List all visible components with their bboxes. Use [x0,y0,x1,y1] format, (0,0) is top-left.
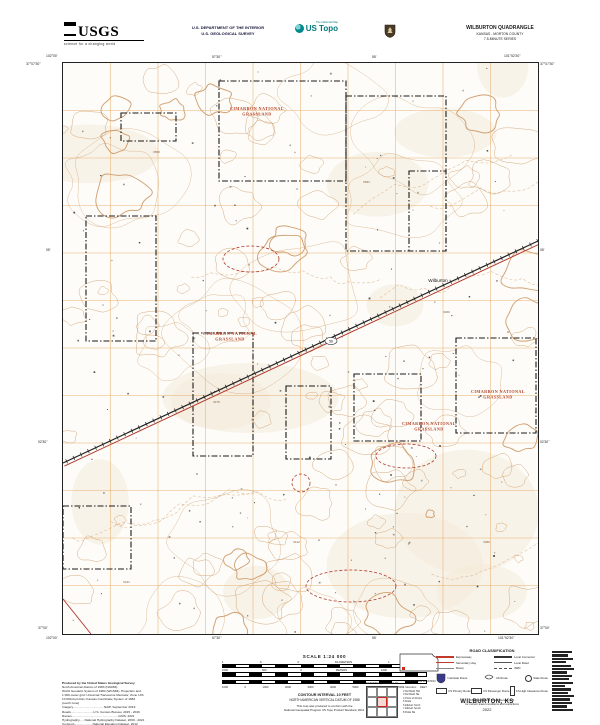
road-sample-ramp [436,668,454,669]
grassland-label-line1: CIMARRON NATIONAL [402,421,456,426]
grassland-label-line1: CIMARRON NATIONAL [471,389,525,394]
grassland-label-line2: GRASSLAND [483,395,512,400]
structure-dot [216,105,217,106]
structure-dot [280,390,282,392]
adjoining-cell [387,687,397,697]
grassland-label-line2: GRASSLAND [242,112,271,117]
structure-dot [139,242,140,243]
graticule-label: 37°07'30" [26,62,41,66]
structure-dot [450,487,451,488]
structure-dot [393,526,394,527]
ft-label: 3000 [308,686,314,689]
structure-dot [396,193,397,194]
us-route-number: 56 [329,339,333,343]
structure-dot [385,356,386,357]
structure-dot [136,438,137,439]
route-shield-item: State Route [525,673,548,684]
structure-dot [77,340,79,342]
structure-dot [487,150,489,152]
structure-dot [297,189,298,190]
structure-dot [451,315,452,316]
contour-line [157,591,200,631]
fs-route-marker-icon [471,688,482,694]
structure-dot [83,230,84,231]
structure-dot [439,581,440,582]
contour-line [220,150,236,163]
m-label: 0 [300,669,302,672]
structure-dot [369,298,371,300]
legend-road-item: Expressway [436,655,490,659]
adjoining-list: 1 Saunders2 Richfield SW3 Richfield SE4 … [403,686,422,718]
structure-dot [494,552,495,553]
contour-line [331,622,356,634]
structure-dot [127,393,128,394]
km-label: 1 [388,661,390,664]
structure-dot [294,631,296,633]
spot-elevation: 3389 [483,540,490,544]
adjoining-quad-name: 3 Richfield SE [403,693,422,697]
structure-dot [123,184,125,186]
structure-dot [140,504,141,505]
structure-dot [329,395,330,396]
structure-dot [486,68,487,69]
structure-dot [113,331,114,332]
ustopo-logo: The National Map US Topo [286,20,338,33]
structure-dot [107,409,108,410]
usgs-logo-text: USGS [78,24,119,40]
structure-dot [103,492,105,494]
contour-line [213,612,248,634]
structure-dot [206,310,207,311]
quadrangle-series: 7.5-MINUTE SERIES [415,37,585,42]
contour-line [429,353,450,369]
barcode-bar [552,665,571,667]
structure-dot [429,357,430,358]
terrain-patch [327,513,484,618]
contour-line [296,487,332,520]
structure-dot [535,412,537,414]
contour-line [63,575,94,604]
department-heading: U.S. DEPARTMENT OF THE INTERIOR U.S. GEO… [148,25,308,37]
structure-dot [281,600,282,601]
adjoining-cell [387,707,397,717]
contour-line [277,63,389,135]
structure-dot [393,534,395,536]
ft-label: 1000 [263,686,269,689]
adjoining-cell [367,707,377,717]
contour-line [492,128,538,164]
structure-dot [309,457,311,459]
structure-dot [294,152,295,153]
structure-dot [174,557,175,558]
structure-dot [178,354,179,355]
barcode-bar [552,692,568,694]
structure-dot [377,229,378,230]
structure-dot [220,79,221,80]
structure-dot [203,280,204,281]
structure-dot [283,494,284,495]
route-shield-label: Interstate Route [448,676,468,680]
structure-dot [478,396,480,398]
contour-line [193,553,222,576]
structure-dot [254,502,255,503]
contour-line [449,166,480,188]
ft-label: 0 [245,686,247,689]
terrain-patch [223,566,290,619]
structure-dot [477,586,479,588]
structure-dot [199,521,200,522]
structure-dot [408,543,409,544]
structure-dot [404,497,405,498]
graticule-label: 02'30" [38,440,47,444]
road-sample-connector [494,656,512,657]
legend-road-item: Ramp [436,666,490,670]
legend-road-item: Local Connector [494,655,548,659]
barcode-bar [552,668,574,670]
road-label: Local Connector [514,655,535,659]
sheet-year: 2022 [432,707,542,712]
graticule-label: 05' [46,248,50,252]
structure-dot [416,456,417,457]
m-label: 1000 [222,669,228,672]
map-frame: 3595353134753460341233893441CIMARRON NAT… [62,62,539,635]
contour-line [143,64,179,93]
structure-dot [413,604,414,605]
structure-dot [507,331,508,332]
route-shield-label: State Route [533,676,548,680]
structure-dot [373,400,375,402]
structure-dot [390,474,392,476]
structure-dot [100,175,101,176]
contour-line [177,284,189,294]
contour-line [178,230,199,247]
grassland-boundary [456,338,536,433]
structure-dot [193,337,195,339]
structure-dot [73,620,74,621]
contour-line [503,424,538,452]
structure-dot [403,360,405,362]
structure-dot [73,212,75,214]
legend-road-item: Local Road [494,661,548,665]
structure-dot [484,631,485,632]
legend-road-item: Secondary Hwy [436,661,490,665]
structure-dot [409,542,411,544]
graticule-label: 37°07'30" [540,62,555,66]
contour-line [101,96,131,121]
barcode-bar [552,709,573,711]
graticule-label: 101°52'30" [504,54,520,58]
barcode-bar [552,698,570,700]
contour-line [79,280,118,312]
structure-dot [434,301,435,302]
structure-dot [111,260,112,261]
structure-dot [230,186,232,188]
ustopo-name: US Topo [306,24,338,33]
barcode-bar [552,654,568,656]
structure-dot [462,90,464,92]
product-barcode [552,651,576,711]
road-label: Expressway [456,655,472,659]
structure-dot [232,497,233,498]
usgs-logo: USGS science for a changing world [64,22,144,46]
structure-dot [192,142,194,144]
structure-dot [247,517,248,518]
structure-dot [439,445,441,447]
contour-line [245,114,275,141]
stream-line [111,489,286,528]
structure-dot [469,296,470,297]
structure-dot [257,364,258,365]
spot-elevation: 3531 [363,180,370,184]
barcode-bar [552,651,572,653]
structure-dot [365,167,366,168]
structure-dot [480,395,482,397]
contour-line [219,309,229,317]
contour-line [469,160,510,194]
dept-line2: U.S. GEOLOGICAL SURVEY [148,31,308,37]
barcode-bar [552,705,567,707]
structure-dot [247,615,248,616]
structure-dot [421,480,423,482]
fs-route-item: FS Passenger Route [471,686,509,696]
adjoining-cell-current [377,697,387,707]
graticule-label: 02'30" [540,440,549,444]
structure-dot [234,205,235,206]
structure-dot [240,512,241,513]
structure-dot [501,481,502,482]
structure-dot [232,526,233,527]
structure-dot [91,459,92,460]
structure-dot [397,513,398,514]
structure-dot [214,205,216,207]
red-dashed-area [292,474,310,492]
spot-elevation: 3595 [153,150,160,154]
structure-dot [247,228,249,230]
sheet-title-block: WILBURTON, KS 2022 [432,699,542,712]
structure-dot [375,532,376,533]
km-label: .5 [259,661,261,664]
state-route-icon [525,675,532,682]
us-route-shield-icon [484,673,494,684]
graticule-label: 57'30" [212,55,221,59]
structure-dot [404,584,406,586]
topo-map-canvas: 3595353134753460341233893441CIMARRON NAT… [63,63,538,634]
structure-dot [453,353,454,354]
structure-dot [329,315,330,316]
structure-dot [102,304,103,305]
graticule-label: 55' [372,636,376,640]
structure-dot [318,540,319,541]
adjoining-quad-name: 7 Elkhart South [403,707,422,711]
contour-line [418,346,502,417]
structure-dot [393,177,395,179]
structure-dot [339,428,340,429]
structure-dot [149,331,151,333]
km-label: 1 [222,661,224,664]
production-credits: Produced by the United States Geological… [62,681,202,725]
structure-dot [97,580,98,581]
spot-elevation: 3412 [293,540,300,544]
structure-dot [319,582,321,584]
graticule-label: 102°00' [46,54,57,58]
contour-line [252,297,263,307]
road-label: Secondary Hwy [456,661,476,665]
structure-dot [495,181,496,182]
adjoining-cell [387,697,397,707]
legend-title: ROAD CLASSIFICATION [436,648,548,653]
contour-line [257,235,307,272]
red-dashed-area [223,246,279,272]
town-label-wilburton: Wilburton [428,278,448,283]
structure-dot [244,176,245,177]
road-label: Local Road [514,661,529,665]
contour-line [254,526,276,543]
adjoining-grid [366,686,398,718]
structure-dot [214,391,215,392]
adjoining-cell [377,687,387,697]
structure-dot [79,507,80,508]
structure-dot [257,71,258,72]
grassland-boundary [86,216,156,341]
structure-dot [330,73,332,75]
km-label: 0 [298,661,300,664]
structure-dot [374,410,375,411]
road-sample-local [494,662,512,663]
contour-line [374,446,413,481]
fs-route-marker-icon [510,686,515,696]
contour-line [353,379,368,391]
structure-dot [249,264,250,265]
road-label: Ramp [456,666,464,670]
m-label: 1000 [381,669,387,672]
road-sample-secondary [436,662,454,663]
contour-line [63,307,86,325]
structure-dot [116,317,118,319]
structure-dot [345,444,346,445]
structure-dot [380,155,381,156]
structure-dot [82,131,83,132]
contour-line [312,450,353,480]
spot-elevation: 3475 [213,400,220,404]
adjoining-cell [377,707,387,717]
structure-dot [110,137,111,138]
contour-line [511,327,536,346]
structure-dot [162,396,164,398]
barcode-bar [552,675,572,677]
usgs-wave-icon [64,22,76,36]
graticule-label: 55' [372,55,376,59]
quadrangle-title-block: WILBURTON QUADRANGLE KANSAS - MORTON COU… [415,24,585,43]
structure-dot [365,508,366,509]
ft-label: 2000 [285,686,291,689]
usgs-topo-map-sheet: USGS science for a changing world U.S. D… [0,0,600,725]
grassland-label-line1: CIMARRON NATIONAL [230,106,284,111]
m-label: METERS [336,669,347,672]
route-shield-label: US Route [496,676,508,680]
structure-dot [335,592,336,593]
structure-dot [473,495,474,496]
legend-road-item: 4WD [494,666,548,670]
contour-line [311,356,329,370]
adjoining-cell [367,697,377,707]
structure-dot [94,371,96,373]
road-sample-fourwd [494,668,512,669]
structure-dot [422,368,423,369]
grassland-label-line2: GRASSLAND [414,427,443,432]
structure-dot [289,145,291,147]
road-label: 4WD [514,666,520,670]
structure-dot [189,510,190,511]
barcode-bar [552,695,574,697]
contour-line [160,99,185,120]
structure-dot [353,601,354,602]
spot-elevation: 3441 [123,580,130,584]
structure-dot [480,468,482,470]
ustopo-globe-icon [295,24,304,33]
ft-label: 5000 [353,686,359,689]
graticule-label: 102°00' [46,636,57,640]
graticule-label: 37°00' [38,626,48,630]
route-shield-item: US Route [484,673,508,684]
structure-dot [329,406,331,408]
road-segment [63,599,91,634]
structure-dot [496,280,497,281]
graticule-label: 101°52'30" [498,636,514,640]
contour-line [281,306,326,341]
m-label: 500 [262,669,266,672]
road-sample-expressway [436,656,454,658]
structure-dot [375,593,376,594]
grassland-boundary [219,81,346,181]
structure-dot [412,210,413,211]
adjoining-cell [367,687,377,697]
structure-dot [113,335,115,337]
barcode-bar [552,661,566,663]
structure-dot [391,269,392,270]
structure-dot [485,514,486,515]
structure-dot [179,603,180,604]
contour-line [506,298,538,341]
structure-dot [389,306,390,307]
structure-dot [348,371,349,372]
barcode-bar [552,688,571,690]
contour-line [63,430,77,443]
structure-dot [514,601,515,602]
contour-line [133,576,224,634]
ft-label: 1000 [222,686,228,689]
structure-dot [335,484,337,486]
grassland-label-line2: GRASSLAND [215,337,244,342]
structure-dot [339,422,340,423]
structure-dot [196,473,198,475]
barcode-bar [552,671,567,673]
structure-dot [193,608,194,609]
graticule-label: 57'30" [212,636,221,640]
contour-line [341,415,390,455]
barcode-bar [552,682,573,684]
structure-dot [439,242,440,243]
contour-line [260,291,295,320]
structure-dot [459,375,460,376]
structure-dot [385,558,386,559]
barcode-bar [552,658,573,660]
km-label: KILOMETERS [335,661,352,664]
structure-dot [412,101,413,102]
quadrangle-name: WILBURTON QUADRANGLE [415,24,585,32]
graticule-label: 05' [540,248,544,252]
contour-line [268,532,307,560]
structure-dot [377,158,378,159]
